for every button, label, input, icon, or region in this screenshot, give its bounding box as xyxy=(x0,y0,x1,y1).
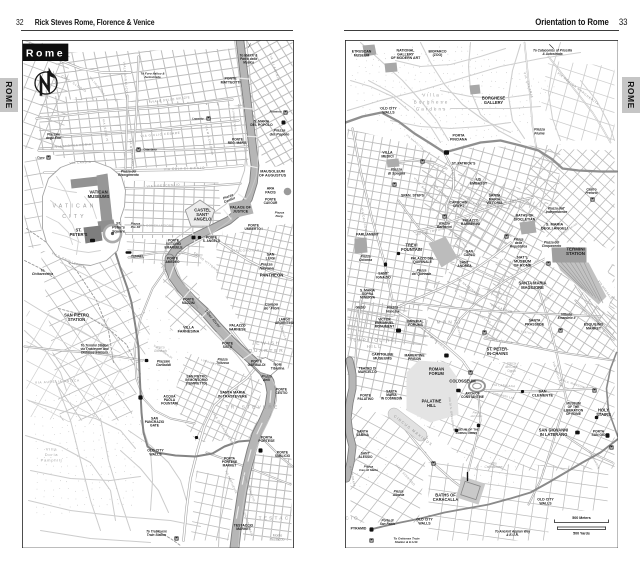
svg-text:TRASTEVERE: TRASTEVERE xyxy=(225,404,279,410)
svg-text:M: M xyxy=(393,182,396,186)
svg-text:TERMINISTATION: TERMINISTATION xyxy=(566,246,585,256)
svg-text:M: M xyxy=(421,159,424,163)
svg-text:M: M xyxy=(559,328,562,332)
svg-text:TUNNEL: TUNNEL xyxy=(131,254,144,258)
svg-text:SANTASABINA: SANTASABINA xyxy=(356,429,369,437)
svg-text:TESTAC: TESTAC xyxy=(258,515,290,521)
svg-text:Flaminio: Flaminio xyxy=(269,109,281,113)
svg-text:PiazzaVenezia: PiazzaVenezia xyxy=(385,305,398,313)
svg-text:PiazzaAlbania: PiazzaAlbania xyxy=(391,489,404,497)
svg-text:PONTEAMEDEO: PONTEAMEDEO xyxy=(165,256,180,263)
svg-text:ROMANFORUM: ROMANFORUM xyxy=(428,366,444,375)
svg-text:M: M xyxy=(483,330,486,334)
svg-text:PONTECESTIO: PONTECESTIO xyxy=(275,387,287,395)
svg-text:S. MARIASOPRAMINERVA: S. MARIASOPRAMINERVA xyxy=(360,288,376,299)
svg-text:Piazza dell’Independence: Piazza dell’Independence xyxy=(545,206,567,214)
svg-text:M: M xyxy=(593,388,596,392)
svg-text:PANTHEON: PANTHEON xyxy=(259,272,283,277)
svg-text:M: M xyxy=(505,234,508,238)
svg-text:M: M xyxy=(469,370,472,374)
svg-text:ESQUILINOMARKET: ESQUILINOMARKET xyxy=(583,322,603,330)
svg-text:M: M xyxy=(370,538,373,542)
svg-text:Campode’ Fiori: Campode’ Fiori xyxy=(263,301,279,310)
svg-text:Cipro: Cipro xyxy=(36,155,44,159)
svg-text:BORGHESEGALLERY: BORGHESEGALLERY xyxy=(481,95,505,104)
svg-text:Ottaviano: Ottaviano xyxy=(143,147,157,151)
svg-text:VATICANMUSEUMS: VATICANMUSEUMS xyxy=(87,189,109,199)
svg-text:M: M xyxy=(547,261,550,265)
svg-text:HOLYSTAIRS: HOLYSTAIRS xyxy=(596,407,611,416)
svg-text:M: M xyxy=(137,147,140,151)
svg-text:PONTESISTO: PONTESISTO xyxy=(221,341,233,349)
svg-text:GESÙ: GESÙ xyxy=(355,304,365,309)
svg-text:M: M xyxy=(207,116,210,120)
svg-text:PALAZZO DELQUIRINALE: PALAZZO DELQUIRINALE xyxy=(410,256,434,264)
svg-text:500 Meters: 500 Meters xyxy=(572,516,591,520)
svg-text:M: M xyxy=(47,155,50,159)
svg-text:To Termini Stationvia Trasteve: To Termini Stationvia Trastevere andDist… xyxy=(80,343,109,354)
svg-text:Porta diSan Paolo: Porta diSan Paolo xyxy=(379,518,395,526)
svg-text:Rome: Rome xyxy=(25,47,64,59)
svg-text:PiazzaColonna: PiazzaColonna xyxy=(358,254,371,262)
svg-text:PiazzaBorg.: PiazzaBorg. xyxy=(274,210,284,217)
svg-text:SAN PIETROIN MONTORIO(TEMPIETT: SAN PIETROIN MONTORIO(TEMPIETTO) xyxy=(185,374,208,385)
svg-text:M: M xyxy=(175,536,178,540)
svg-text:M: M xyxy=(284,110,287,114)
svg-text:VIA CONCILIAZIONE: VIA CONCILIAZIONE xyxy=(139,223,174,227)
svg-text:M: M xyxy=(591,197,594,201)
svg-text:PiazzaNavona: PiazzaNavona xyxy=(259,261,274,270)
svg-text:COLOSSEUM: COLOSSEUM xyxy=(449,378,476,383)
svg-text:Lepanto: Lepanto xyxy=(192,116,203,120)
svg-text:To TrastevereTrain Station: To TrastevereTrain Station xyxy=(146,529,167,537)
svg-text:M: M xyxy=(432,461,435,465)
svg-text:SANLUIGI: SANLUIGI xyxy=(265,252,275,260)
svg-text:PiazzaFiume: PiazzaFiume xyxy=(534,127,545,135)
svg-text:500 Yards: 500 Yards xyxy=(573,531,590,535)
svg-text:CAPITOLINEMUSEUMS: CAPITOLINEMUSEUMS xyxy=(371,352,393,360)
svg-text:ST. PATRICK’S: ST. PATRICK’S xyxy=(451,161,475,165)
svg-text:PONTECAVOUR: PONTECAVOUR xyxy=(263,197,277,205)
svg-text:MAUSOLEUMOF AUGUSTUS: MAUSOLEUMOF AUGUSTUS xyxy=(258,169,286,177)
svg-text:Piazza delRisorgimento: Piazza delRisorgimento xyxy=(118,169,139,177)
svg-text:BATHS OFDIOCLETIAN: BATHS OFDIOCLETIAN xyxy=(513,213,535,221)
svg-text:SPAN. STEPS: SPAN. STEPS xyxy=(401,193,425,197)
svg-text:SANTA MARIAIN TRASTEVERE: SANTA MARIAIN TRASTEVERE xyxy=(217,390,247,398)
svg-text:PORTASAN GIO: PORTASAN GIO xyxy=(591,429,605,437)
svg-text:M: M xyxy=(443,214,446,218)
svg-text:To Ostiense TrainStation & E.U: To Ostiense TrainStation & E.U.R. xyxy=(393,536,419,543)
svg-text:Piazza deiCinquecento: Piazza deiCinquecento xyxy=(541,240,560,248)
svg-text:ST. PETER-IN-CHAINS: ST. PETER-IN-CHAINS xyxy=(486,346,509,355)
svg-text:BATHS OFCARACALLA: BATHS OFCARACALLA xyxy=(432,492,458,501)
svg-text:PYRAMID: PYRAMID xyxy=(350,526,366,530)
svg-text:M: M xyxy=(610,445,613,449)
svg-text:TEATRO DIMARCELLO: TEATRO DIMARCELLO xyxy=(358,366,377,374)
svg-text:CIO: CIO xyxy=(345,515,359,520)
svg-text:CastroPretorio: CastroPretorio xyxy=(585,187,597,195)
svg-text:ETRUSCANMUSEUM: ETRUSCANMUSEUM xyxy=(351,49,371,57)
svg-text:SAN GIOVANNIIN LATERANO: SAN GIOVANNIIN LATERANO xyxy=(538,427,568,436)
svg-text:Piazzaledegli Eroi: Piazzaledegli Eroi xyxy=(45,132,60,140)
svg-text:PALAZZOBARBERINI: PALAZZOBARBERINI xyxy=(461,218,480,226)
svg-text:VILLAMEDICI: VILLAMEDICI xyxy=(381,150,393,158)
svg-text:SANTA MARIAMAGGIORE: SANTA MARIAMAGGIORE xyxy=(518,280,546,289)
svg-text:PiazzaleGaribaldi: PiazzaleGaribaldi xyxy=(156,359,171,367)
svg-text:VIA CORONARI: VIA CORONARI xyxy=(231,248,261,252)
svg-text:PALAZZOFARNESE: PALAZZOFARNESE xyxy=(229,323,246,331)
